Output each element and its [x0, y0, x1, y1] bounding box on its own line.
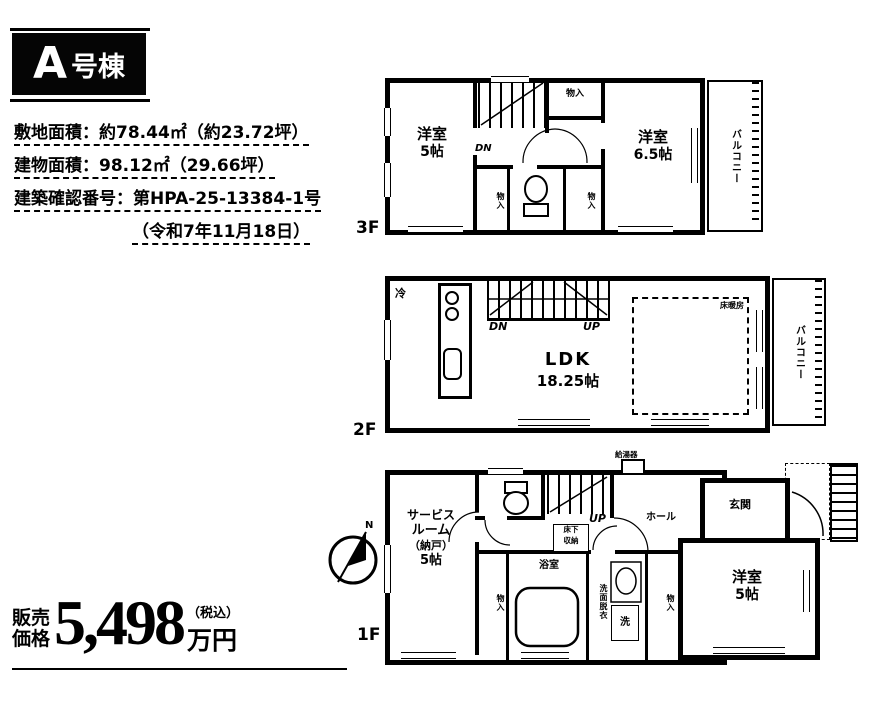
service-line3: （納戸） [391, 539, 471, 553]
window [491, 76, 529, 83]
closet-label: 物入 [481, 173, 505, 228]
ldk-name: LDK [523, 349, 613, 372]
wall [475, 470, 479, 655]
window [518, 419, 590, 426]
wall [473, 165, 605, 169]
floor-plan-1f: UP 給湯器 床下 収納 サービス ルーム （納戸） 5帖 ホール 玄関 浴室 … [383, 450, 870, 678]
price-tax-note: （税込） [187, 602, 239, 621]
balcony-railing [752, 82, 759, 226]
unit-badge-letter: A [33, 42, 67, 86]
underfloor-line2: 収納 [554, 536, 588, 547]
price-unit: 万円 [187, 621, 239, 657]
wall [545, 78, 549, 133]
site-area-line: 敷地面積：約78.44㎡（約23.72坪） [14, 118, 350, 146]
closet-label: 物入 [481, 568, 505, 638]
window [618, 226, 673, 233]
balcony-label: バルコニー [728, 129, 743, 184]
stairs [487, 279, 610, 321]
wall [506, 554, 509, 660]
door-opening [591, 550, 615, 554]
bath-label: 浴室 [513, 560, 585, 573]
floor-heating-label: 床暖房 [720, 300, 744, 311]
stairs-dn-label: DN [489, 320, 507, 334]
underfloor-line1: 床下 [554, 525, 588, 536]
room-name: 洋室 [703, 568, 791, 587]
wall [545, 116, 605, 120]
room-name: 洋室 [609, 128, 697, 147]
site-area-text: 敷地面積：約78.44㎡（約23.72坪） [14, 118, 309, 146]
window [651, 419, 709, 426]
unit-badge: A 号棟 [12, 33, 146, 95]
wall [563, 165, 566, 230]
water-heater-box [621, 459, 645, 475]
floor-heating-zone: 床暖房 [632, 297, 749, 415]
price-label-line1: 販売 [12, 608, 50, 629]
window [521, 652, 569, 659]
wall [541, 470, 545, 520]
stairs-up-label: UP [583, 320, 600, 334]
window [756, 367, 763, 409]
stairs-up [547, 474, 609, 514]
price-amount: 5,498 [54, 592, 183, 654]
washroom-label: 洗面脱衣 [588, 562, 608, 642]
permit-date-line: （令和7年11月18日） [14, 217, 350, 245]
floor-plan-3f: DN 洋室 5帖 洋室 6.5帖 物入 物入 物入 バルコニー [383, 73, 783, 243]
window [803, 570, 810, 612]
floor-plan-2f: 冷 DN UP 床暖房 LDK 18.25帖 バルコニー [383, 265, 848, 445]
room-name: 洋室 [393, 125, 471, 144]
underfloor-storage: 床下 収納 [553, 524, 589, 552]
service-line2: ルーム [391, 523, 471, 539]
ldk-size: 18.25帖 [523, 372, 613, 391]
window [408, 226, 463, 233]
room-size: 5帖 [393, 144, 471, 162]
floor-label-2f: 2F [353, 420, 376, 440]
closet-label: 物入 [572, 173, 596, 228]
floor-label-3f: 3F [356, 218, 379, 238]
permit-date-text: （令和7年11月18日） [132, 217, 310, 245]
fridge-label: 冷 [395, 287, 406, 301]
wall [601, 78, 605, 230]
price-suffix: （税込） 万円 [187, 602, 239, 657]
door-opening [513, 165, 537, 169]
permit-number-line: 建築確認番号：第HPA-25-13384-1号 [14, 184, 350, 212]
balcony-label: バルコニー [792, 325, 807, 380]
price-block: 販売 価格 5,498 （税込） 万円 [12, 592, 357, 657]
room-label-west65: 洋室 6.5帖 [609, 128, 697, 164]
price-label-line2: 価格 [12, 629, 50, 650]
laundry-space: 洗 [611, 605, 639, 641]
wall [507, 165, 510, 230]
kitchen-counter [438, 283, 472, 399]
building-area-line: 建物面積：98.12㎡（29.66坪） [14, 151, 350, 179]
door-opening [485, 516, 507, 520]
balcony-railing [815, 280, 822, 420]
window [488, 468, 523, 475]
window [384, 108, 391, 136]
door-opening [601, 123, 605, 149]
badge-bottom-rule [10, 99, 150, 102]
hall-label: ホール [646, 512, 676, 525]
compass-n-label: N [365, 520, 373, 533]
badge-top-rule [10, 28, 150, 31]
window [384, 545, 391, 593]
wall [645, 554, 648, 660]
room-size: 5帖 [703, 587, 791, 605]
service-line1: サービス [391, 508, 471, 523]
closet-label: 物入 [651, 568, 675, 638]
property-info: 敷地面積：約78.44㎡（約23.72坪） 建物面積：98.12㎡（29.66坪… [14, 118, 350, 250]
permit-number-text: 建築確認番号：第HPA-25-13384-1号 [14, 184, 321, 212]
approach-steps [830, 463, 858, 542]
window [691, 128, 698, 183]
ldk-label: LDK 18.25帖 [523, 349, 613, 390]
closet-label: 物入 [551, 89, 599, 100]
window [756, 310, 763, 352]
price-underline [12, 668, 347, 670]
flyer-canvas: A 号棟 敷地面積：約78.44㎡（約23.72坪） 建物面積：98.12㎡（2… [0, 0, 870, 708]
window [713, 647, 785, 654]
water-heater-label: 給湯器 [615, 450, 638, 459]
building-area-text: 建物面積：98.12㎡（29.66坪） [14, 151, 275, 179]
entrance-porch [785, 463, 830, 540]
stairs-dn-label: DN [475, 143, 492, 156]
bedroom-label: 洋室 5帖 [703, 568, 791, 604]
service-room-label: サービス ルーム （納戸） 5帖 [391, 508, 471, 569]
window [401, 652, 456, 659]
compass-north-icon [320, 522, 386, 596]
wall [610, 470, 614, 518]
floor-label-1f: 1F [357, 625, 380, 645]
service-line4: 5帖 [391, 553, 471, 569]
window [384, 163, 391, 197]
stairs-down [478, 80, 545, 128]
room-size: 6.5帖 [609, 147, 697, 165]
price-label: 販売 価格 [12, 608, 50, 650]
unit-badge-suffix: 号棟 [71, 45, 125, 84]
room-label-west5: 洋室 5帖 [393, 125, 471, 161]
entrance-label: 玄関 [710, 498, 770, 512]
window [384, 320, 391, 360]
stairs-up-label: UP [589, 512, 606, 526]
